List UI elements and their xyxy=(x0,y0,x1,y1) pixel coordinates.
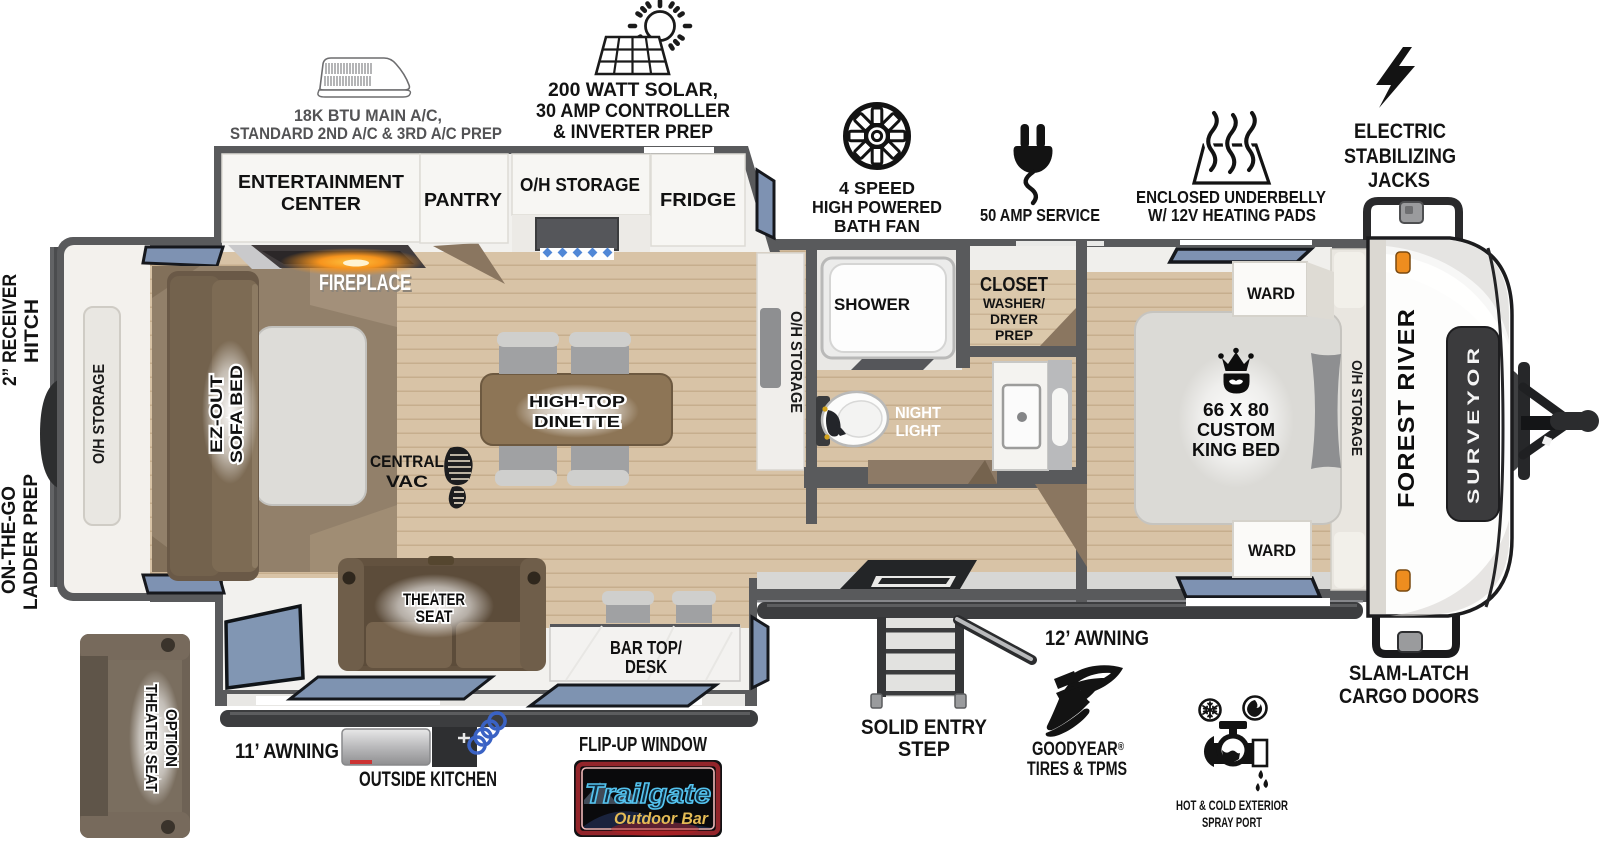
svg-text:30 AMP CONTROLLER: 30 AMP CONTROLLER xyxy=(536,100,730,122)
svg-text:THEATER: THEATER xyxy=(403,591,465,609)
svg-text:JACKS: JACKS xyxy=(1368,169,1430,192)
svg-text:ON-THE-GO: ON-THE-GO xyxy=(0,486,20,594)
svg-text:STABILIZING: STABILIZING xyxy=(1344,145,1456,168)
svg-text:NIGHT: NIGHT xyxy=(895,405,941,422)
svg-text:FIREPLACE: FIREPLACE xyxy=(319,270,411,295)
svg-text:SURVEYOR: SURVEYOR xyxy=(1464,344,1483,504)
svg-text:ENTERTAINMENT: ENTERTAINMENT xyxy=(238,172,404,192)
svg-text:SEAT: SEAT xyxy=(416,608,453,626)
svg-text:HIGH-TOP: HIGH-TOP xyxy=(529,394,625,411)
svg-text:11’ AWNING: 11’ AWNING xyxy=(235,740,339,763)
svg-text:O/H STORAGE: O/H STORAGE xyxy=(520,175,640,195)
svg-text:LIGHT: LIGHT xyxy=(896,423,941,440)
svg-text:HOT & COLD EXTERIOR: HOT & COLD EXTERIOR xyxy=(1176,797,1288,813)
svg-text:PREP: PREP xyxy=(995,327,1033,343)
svg-text:4 SPEED: 4 SPEED xyxy=(839,178,915,198)
svg-text:THEATER SEAT: THEATER SEAT xyxy=(142,684,159,792)
svg-text:WARD: WARD xyxy=(1248,541,1296,560)
svg-text:ENCLOSED UNDERBELLY: ENCLOSED UNDERBELLY xyxy=(1136,187,1326,207)
svg-text:GOODYEAR®: GOODYEAR® xyxy=(1032,739,1124,760)
svg-text:O/H STORAGE: O/H STORAGE xyxy=(1348,360,1365,456)
svg-text:CARGO DOORS: CARGO DOORS xyxy=(1339,685,1479,708)
svg-text:Outdoor Bar: Outdoor Bar xyxy=(614,809,709,828)
svg-text:PANTRY: PANTRY xyxy=(424,190,502,210)
svg-text:CUSTOM: CUSTOM xyxy=(1197,419,1275,440)
svg-text:WARD: WARD xyxy=(1247,284,1295,303)
svg-text:O/H STORAGE: O/H STORAGE xyxy=(787,311,804,413)
svg-text:CENTRAL: CENTRAL xyxy=(370,452,444,471)
svg-text:12’ AWNING: 12’ AWNING xyxy=(1045,627,1149,650)
svg-text:50 AMP SERVICE: 50 AMP SERVICE xyxy=(980,205,1100,225)
svg-text:LADDER PREP: LADDER PREP xyxy=(21,474,42,610)
svg-text:SLAM-LATCH: SLAM-LATCH xyxy=(1349,662,1469,685)
svg-text:VAC: VAC xyxy=(386,472,428,491)
svg-text:O/H STORAGE: O/H STORAGE xyxy=(91,364,108,464)
svg-text:ELECTRIC: ELECTRIC xyxy=(1354,120,1446,143)
svg-text:FOREST RIVER: FOREST RIVER xyxy=(1393,308,1419,508)
svg-text:FLIP-UP WINDOW: FLIP-UP WINDOW xyxy=(579,734,707,756)
svg-text:CLOSET: CLOSET xyxy=(980,274,1048,296)
svg-text:KING BED: KING BED xyxy=(1192,439,1280,460)
svg-text:STEP: STEP xyxy=(898,738,950,761)
svg-text:SPRAY PORT: SPRAY PORT xyxy=(1202,814,1262,830)
svg-text:DRYER: DRYER xyxy=(990,311,1038,327)
svg-text:STANDARD 2ND A/C & 3RD A/C PRE: STANDARD 2ND A/C & 3RD A/C PREP xyxy=(230,124,502,143)
svg-text:DESK: DESK xyxy=(625,657,667,677)
svg-text:TIRES & TPMS: TIRES & TPMS xyxy=(1027,759,1127,780)
svg-text:2” RECEIVER: 2” RECEIVER xyxy=(0,274,21,386)
svg-text:HIGH POWERED: HIGH POWERED xyxy=(812,197,942,217)
svg-text:WASHER/: WASHER/ xyxy=(983,295,1045,311)
svg-text:CENTER: CENTER xyxy=(281,194,361,214)
svg-text:SOFA BED: SOFA BED xyxy=(227,365,246,463)
svg-text:18K BTU MAIN A/C,: 18K BTU MAIN A/C, xyxy=(294,106,442,125)
svg-text:200 WATT SOLAR,: 200 WATT SOLAR, xyxy=(548,79,718,101)
svg-text:BAR TOP/: BAR TOP/ xyxy=(610,638,682,658)
svg-text:66 X 80: 66 X 80 xyxy=(1203,399,1269,420)
svg-text:OPTION: OPTION xyxy=(162,709,179,767)
svg-text:FRIDGE: FRIDGE xyxy=(660,190,736,210)
svg-text:W/ 12V HEATING PADS: W/ 12V HEATING PADS xyxy=(1148,205,1316,225)
svg-text:Trailgate: Trailgate xyxy=(585,778,711,809)
svg-text:BATH FAN: BATH FAN xyxy=(834,216,920,236)
svg-text:& INVERTER PREP: & INVERTER PREP xyxy=(553,121,713,143)
svg-text:SHOWER: SHOWER xyxy=(834,295,910,314)
svg-text:EZ-OUT: EZ-OUT xyxy=(207,374,226,453)
svg-text:HITCH: HITCH xyxy=(22,299,43,363)
svg-text:OUTSIDE KITCHEN: OUTSIDE KITCHEN xyxy=(359,768,497,791)
svg-text:SOLID ENTRY: SOLID ENTRY xyxy=(861,716,987,739)
svg-text:DINETTE: DINETTE xyxy=(534,414,620,431)
